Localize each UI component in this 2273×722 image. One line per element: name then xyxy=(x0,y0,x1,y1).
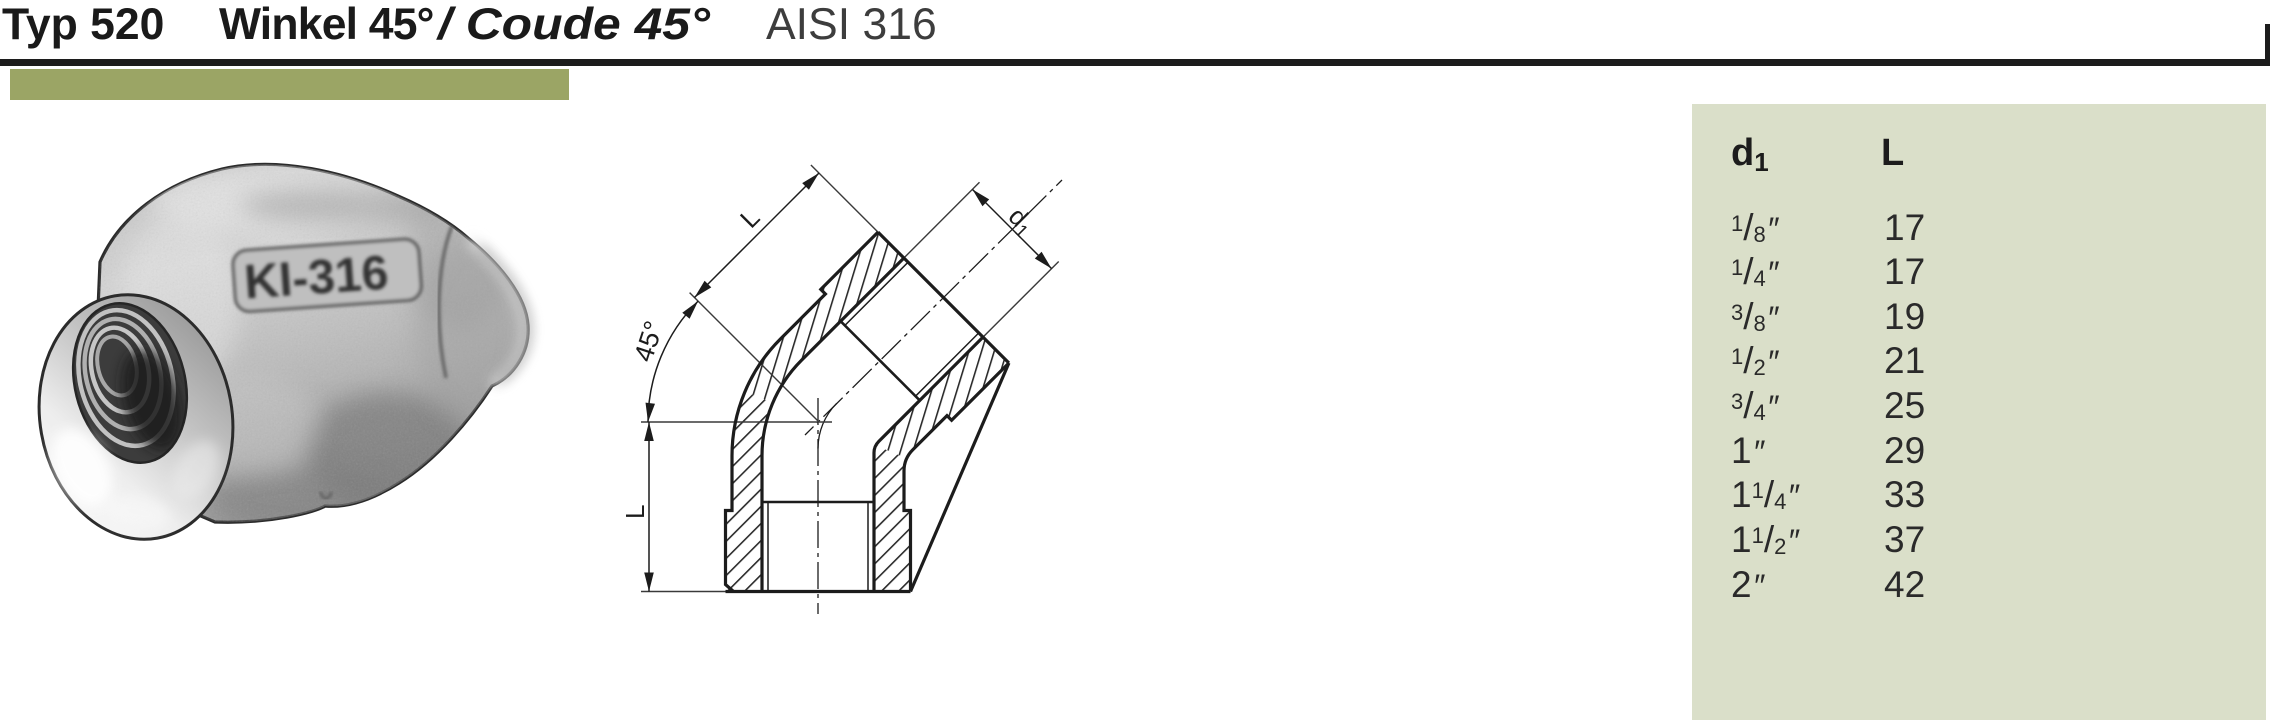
svg-text:KI-316: KI-316 xyxy=(243,247,390,310)
svg-text:L: L xyxy=(734,202,765,233)
svg-text:45°: 45° xyxy=(628,317,669,365)
svg-text:L: L xyxy=(620,505,650,519)
